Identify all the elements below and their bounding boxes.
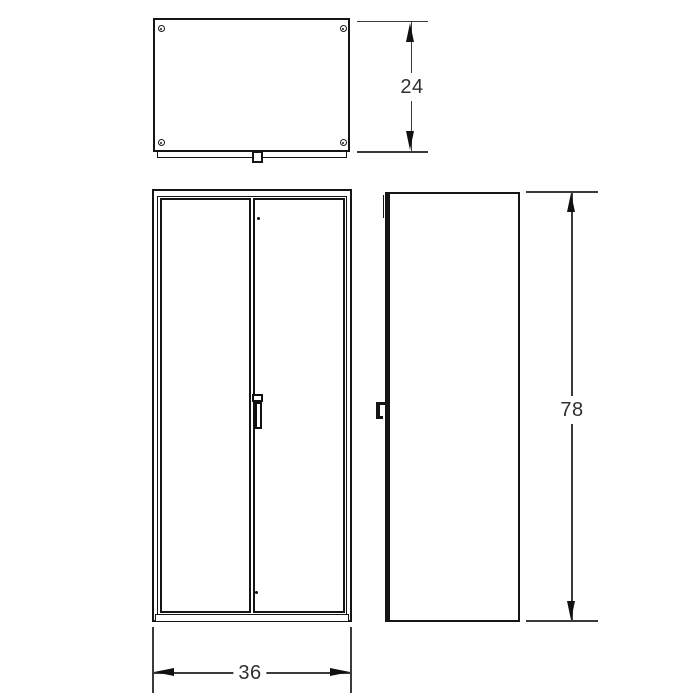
lock-housing [252, 151, 263, 163]
dim-width-extension-left [152, 627, 153, 693]
arrowhead-right-icon [330, 668, 350, 676]
dim-depth-extension-top [357, 21, 428, 22]
door-handle-grip [254, 402, 262, 429]
arrowhead-up-icon [406, 23, 414, 42]
screw-hole-icon [158, 139, 165, 146]
dim-width-extension-right [350, 627, 351, 693]
side-handle-hook [376, 416, 383, 419]
front-bottom-lip [155, 614, 349, 621]
left-door-panel [160, 198, 251, 613]
side-view-outline [385, 192, 520, 622]
arrowhead-up-icon [567, 193, 575, 212]
top-view-outline [153, 18, 350, 152]
screw-hole-icon [340, 139, 347, 146]
side-door-edge [383, 195, 384, 218]
screw-hole-icon [158, 25, 165, 32]
dim-height-label: 78 [555, 396, 588, 424]
arrowhead-down-icon [406, 131, 414, 150]
dim-height-extension-bottom [526, 620, 598, 621]
dim-depth-extension-bottom [357, 151, 428, 152]
arrowhead-left-icon [154, 668, 174, 676]
arrowhead-down-icon [567, 601, 575, 620]
door-handle-base [252, 394, 263, 402]
screw-hole-icon [340, 25, 347, 32]
door-pin-bottom [255, 591, 259, 595]
door-pin-top [257, 217, 261, 221]
technical-drawing-canvas: 24 36 78 [0, 0, 700, 700]
right-door-panel [253, 198, 346, 613]
dim-width-label: 36 [233, 659, 266, 687]
dim-height-extension-top [526, 191, 598, 192]
dim-depth-label: 24 [395, 73, 428, 101]
